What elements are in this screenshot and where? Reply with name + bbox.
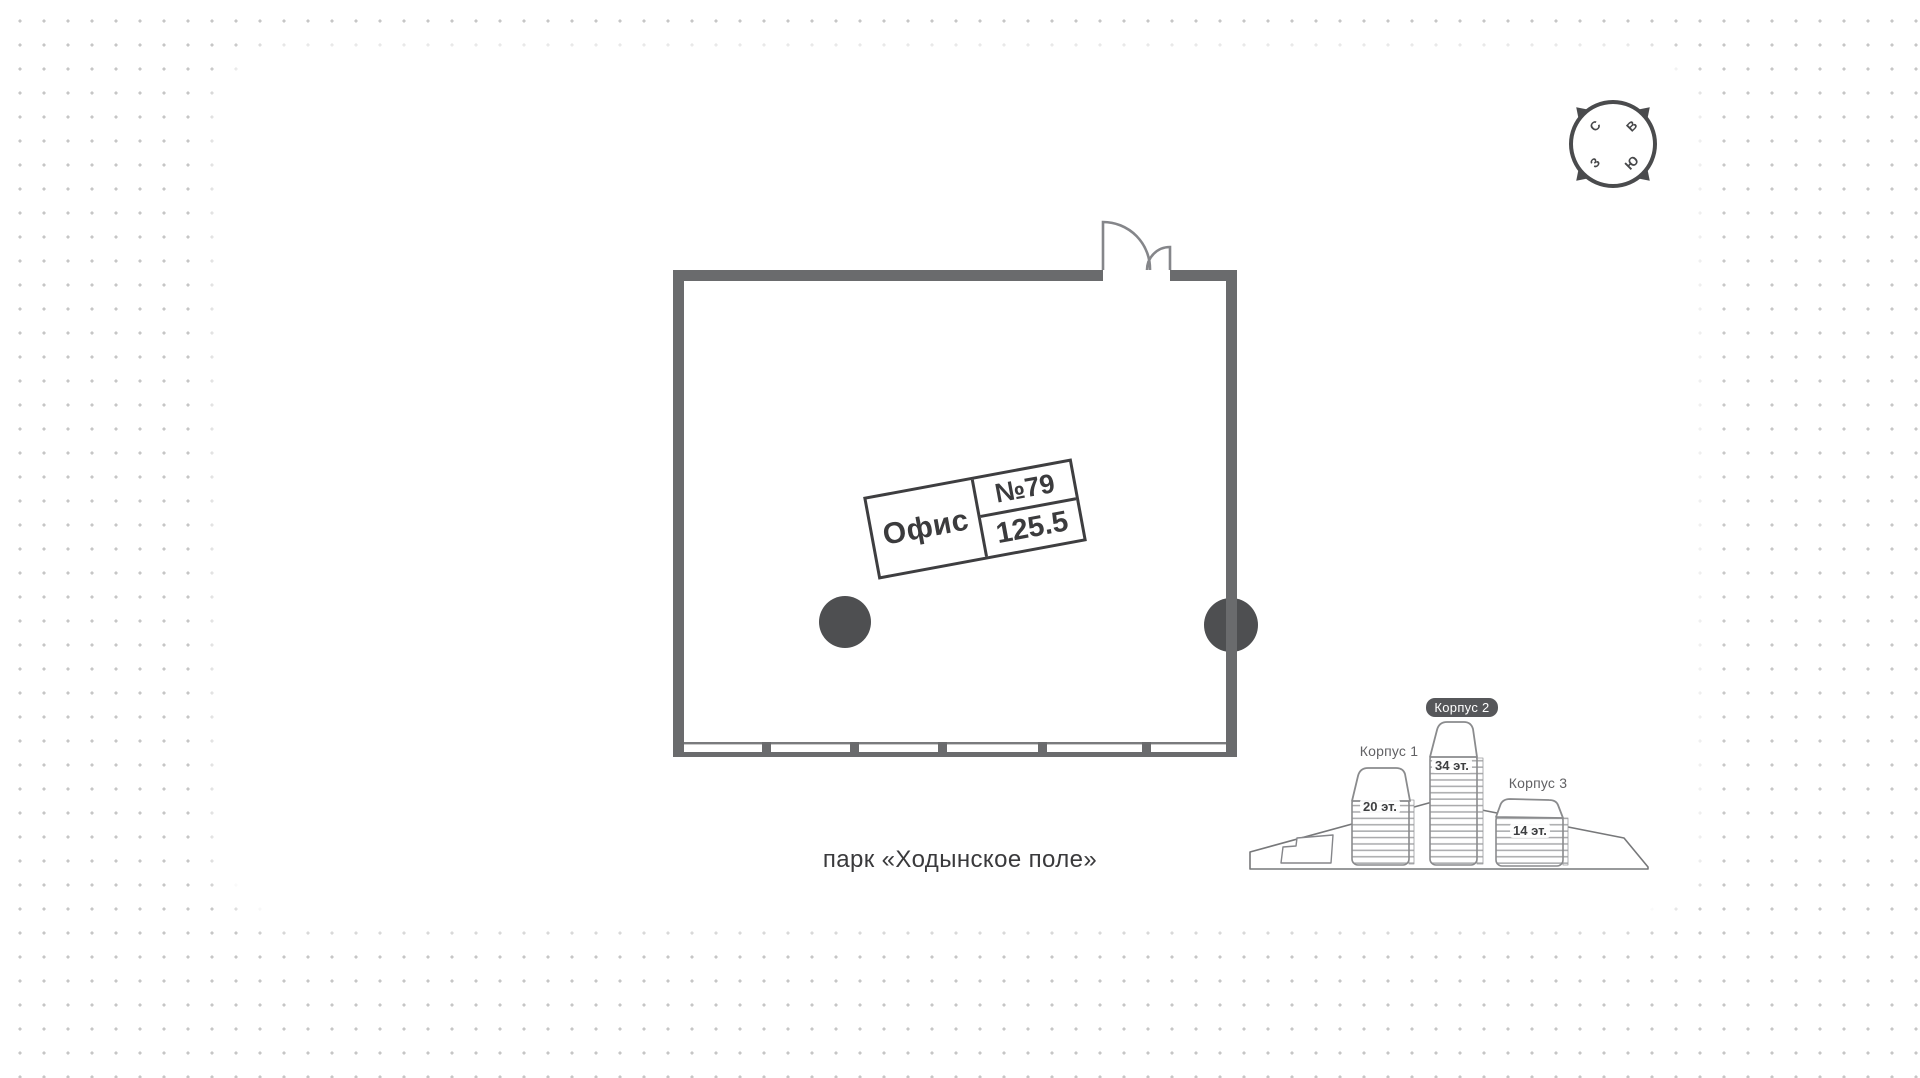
building-floors-2: 34 эт. — [1432, 758, 1472, 773]
buildings-legend — [1250, 722, 1648, 869]
window-band — [673, 742, 1237, 757]
low-rise-footprint — [1281, 835, 1333, 863]
building-floors-1: 20 эт. — [1360, 799, 1400, 814]
compass: С В Ю З — [1539, 70, 1686, 217]
building-floors-3: 14 эт. — [1510, 823, 1550, 838]
column-left — [819, 596, 871, 648]
unit-type-label: Офис — [867, 480, 989, 577]
building-name-1: Корпус 1 — [1349, 743, 1429, 759]
door-swing — [1103, 222, 1170, 270]
building-badge-2[interactable]: Корпус 2 — [1426, 698, 1498, 717]
park-label: парк «Ходынское поле» — [760, 846, 1160, 874]
building-tower-2[interactable] — [1430, 722, 1483, 865]
building-name-3: Корпус 3 — [1498, 775, 1578, 791]
building-tower-1[interactable] — [1352, 768, 1414, 865]
